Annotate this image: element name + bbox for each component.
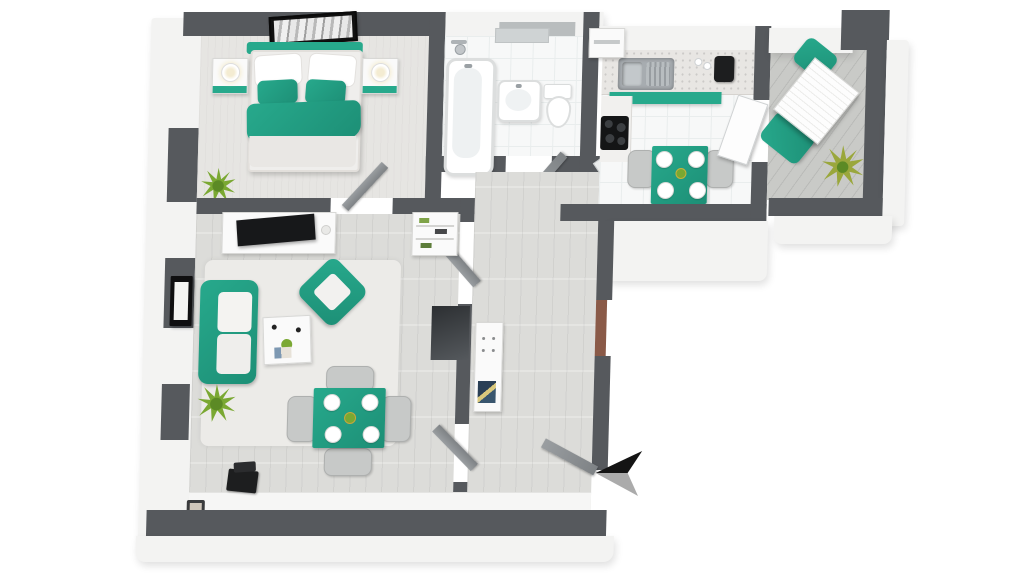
washbasin [497, 80, 542, 122]
magazines [477, 381, 496, 403]
basin-bowl [505, 89, 532, 111]
burner-icon [605, 134, 614, 143]
tub-faucet-icon [464, 64, 472, 68]
window-sill-band [189, 492, 591, 511]
shelf-item [435, 229, 447, 234]
sink-drainboard [646, 62, 671, 86]
knob-icon [492, 349, 495, 352]
lamp-icon [371, 63, 390, 82]
tv-icon [236, 214, 315, 247]
burner-icon [617, 123, 626, 132]
shoe-shelf [411, 212, 458, 256]
shelf-line [416, 238, 454, 240]
cabinet-slot [594, 40, 620, 44]
bedroom-left-window [167, 128, 199, 202]
sofa-cushion [217, 292, 252, 332]
nightstand-right [362, 58, 399, 94]
knob-icon [482, 349, 485, 352]
coffee-table [262, 315, 311, 365]
balcony-bottom-parapet [768, 198, 882, 216]
art-print [274, 15, 353, 42]
candle-icon [296, 327, 301, 332]
dining-chair-bottom [324, 448, 373, 476]
coffee-machine [714, 56, 735, 82]
shelf-item [419, 218, 429, 223]
mirror-shelf [495, 28, 549, 43]
armchair-seat [313, 272, 353, 312]
shelf-item [421, 243, 432, 248]
exterior-below-kitchen [605, 221, 769, 281]
magazine [274, 347, 291, 359]
kitchen-bottom-wall [560, 204, 766, 221]
knob-icon [492, 337, 495, 340]
bathtub-basin [452, 68, 482, 158]
bathtub [443, 58, 496, 176]
exterior-below-balcony [774, 216, 893, 244]
bottom-exterior [135, 536, 614, 562]
tall-cabinet [588, 28, 625, 58]
nightstand-teal-front [363, 86, 397, 93]
living-left-window-lower [160, 384, 189, 440]
sink-basin [622, 62, 643, 86]
kitchen-right-wall-lower [750, 162, 768, 221]
mirror-niche [431, 306, 470, 360]
cooktop-stove [600, 116, 629, 150]
book-stack [234, 461, 256, 473]
living-hall-wall-a [460, 198, 475, 222]
duvet [249, 136, 357, 167]
hall-dresser [473, 322, 503, 412]
accent-pillow-left [257, 79, 298, 105]
balcony-plant-icon [819, 142, 866, 190]
wall-picture [169, 276, 192, 326]
north-arrow-icon [593, 446, 644, 500]
knob-icon [482, 337, 485, 340]
laptop-icon [226, 468, 259, 493]
candle-icon [272, 325, 277, 330]
decor-icon [321, 225, 331, 235]
apartment-plan [0, 0, 1024, 576]
sofa [198, 280, 259, 384]
picture-mat [174, 282, 189, 320]
hall-right-wall-upper [596, 221, 614, 300]
balcony-right-exterior [882, 40, 909, 226]
kitchen-sink [618, 58, 675, 90]
living-plant-icon [195, 382, 238, 424]
basin-tap-icon [516, 84, 522, 88]
burner-icon [605, 120, 613, 128]
nightstand-teal-front [213, 86, 247, 93]
sofa-cushion [216, 334, 251, 374]
lamp-icon [221, 63, 240, 82]
nightstand-left [212, 58, 249, 94]
shelf-line [416, 225, 454, 227]
bottom-wall [146, 510, 607, 536]
burner-icon [617, 137, 625, 145]
tv-sideboard [221, 212, 336, 254]
floorplan-image [0, 0, 1024, 576]
entry-door-brown [595, 300, 607, 356]
